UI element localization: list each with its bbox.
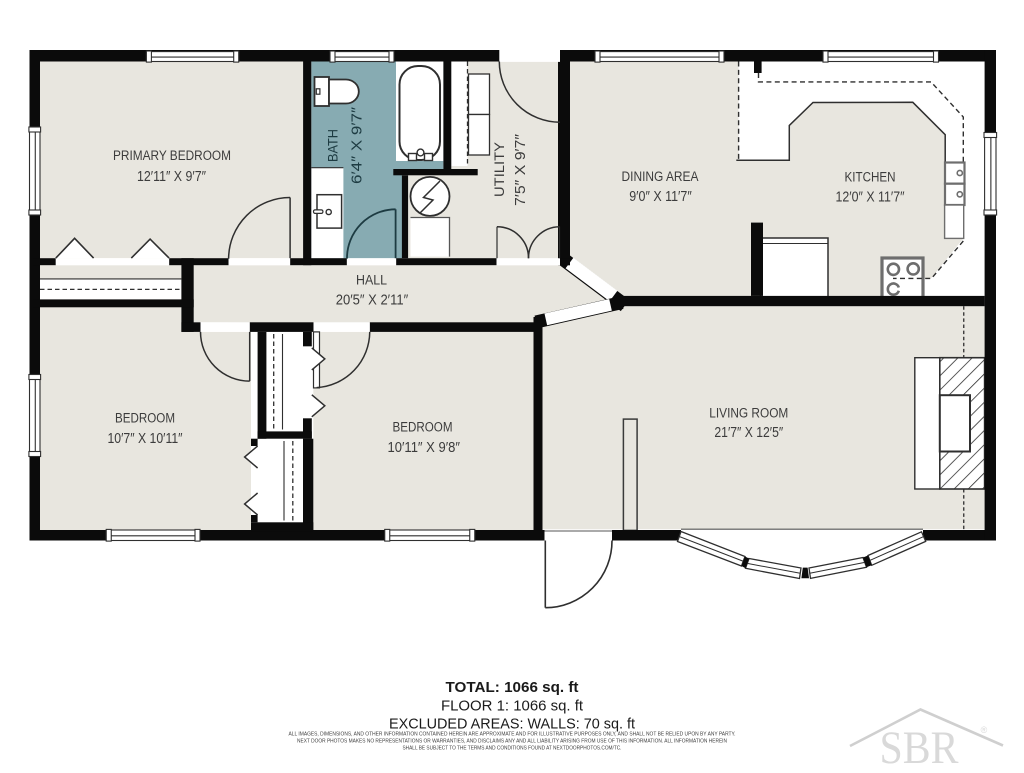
svg-text:EXCLUDED AREAS: WALLS: 70 sq.: EXCLUDED AREAS: WALLS: 70 sq. ft bbox=[389, 716, 636, 733]
svg-text:9′0″ X 11′7″: 9′0″ X 11′7″ bbox=[629, 188, 692, 205]
svg-text:ALL IMAGES, DIMENSIONS, AND OT: ALL IMAGES, DIMENSIONS, AND OTHER INFORM… bbox=[289, 732, 736, 738]
svg-text:TOTAL: 1066 sq. ft: TOTAL: 1066 sq. ft bbox=[446, 679, 579, 696]
svg-text:10′7″ X 10′11″: 10′7″ X 10′11″ bbox=[108, 430, 184, 447]
svg-text:UTILITY: UTILITY bbox=[492, 141, 508, 197]
svg-text:KITCHEN: KITCHEN bbox=[845, 170, 896, 186]
svg-text:21′7″ X 12′5″: 21′7″ X 12′5″ bbox=[714, 424, 783, 441]
svg-text:®: ® bbox=[981, 725, 988, 735]
svg-text:PRIMARY BEDROOM: PRIMARY BEDROOM bbox=[113, 148, 231, 164]
svg-text:LIVING ROOM: LIVING ROOM bbox=[709, 406, 788, 422]
svg-text:DINING AREA: DINING AREA bbox=[622, 169, 699, 185]
svg-text:7′5″ X 9′7″: 7′5″ X 9′7″ bbox=[512, 133, 529, 206]
svg-text:10′11″ X 9′8″: 10′11″ X 9′8″ bbox=[388, 439, 461, 456]
svg-text:NEXT DOOR PHOTOS MAKES NO REPR: NEXT DOOR PHOTOS MAKES NO REPRESENTATION… bbox=[297, 739, 727, 745]
svg-text:12′11″ X 9′7″: 12′11″ X 9′7″ bbox=[137, 168, 207, 185]
svg-text:FLOOR 1: 1066 sq. ft: FLOOR 1: 1066 sq. ft bbox=[441, 698, 584, 715]
svg-text:6′4″ X 9′7″: 6′4″ X 9′7″ bbox=[349, 106, 366, 184]
svg-text:12′0″ X 11′7″: 12′0″ X 11′7″ bbox=[836, 188, 906, 205]
svg-text:BEDROOM: BEDROOM bbox=[115, 411, 175, 427]
svg-text:BATH: BATH bbox=[326, 129, 342, 162]
svg-text:SBR: SBR bbox=[880, 722, 960, 768]
svg-text:HALL: HALL bbox=[356, 272, 387, 288]
svg-text:SHALL BE SUBJECT TO THE TERMS: SHALL BE SUBJECT TO THE TERMS AND CONDIT… bbox=[403, 746, 622, 752]
svg-text:BEDROOM: BEDROOM bbox=[393, 420, 453, 436]
svg-text:20′5″ X 2′11″: 20′5″ X 2′11″ bbox=[336, 291, 409, 308]
